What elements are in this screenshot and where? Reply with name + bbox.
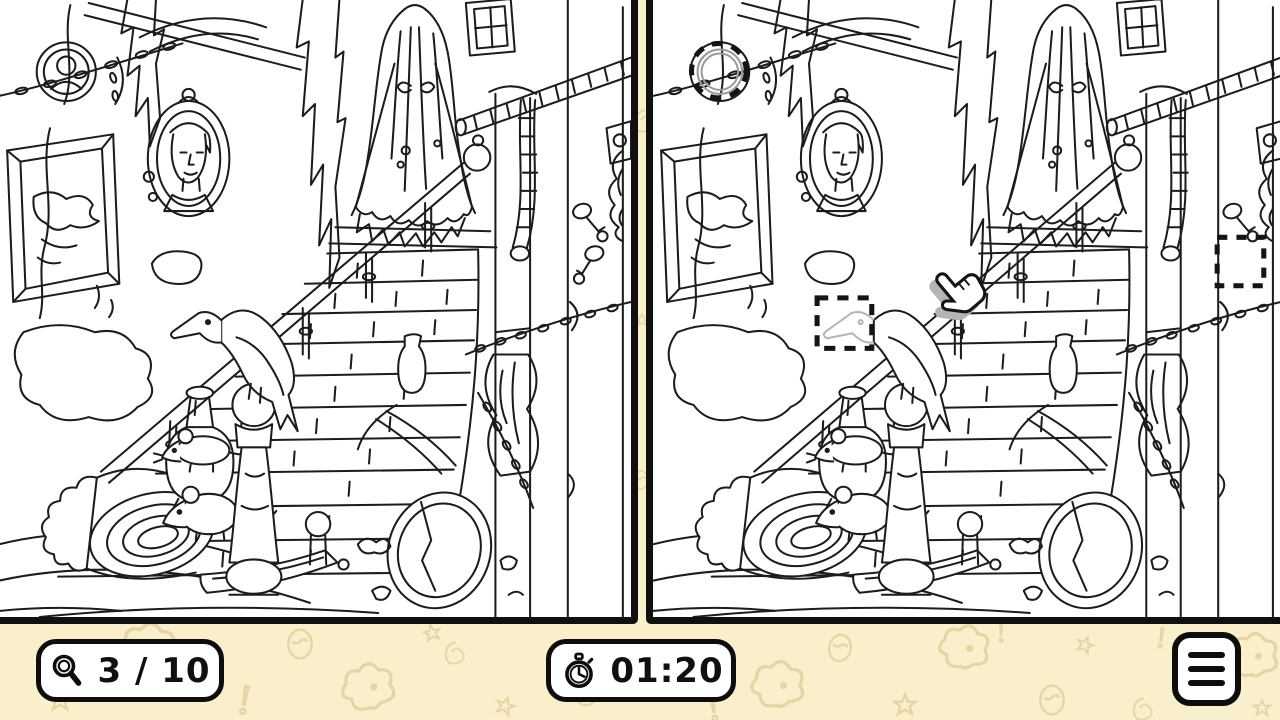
hamburger-menu-icon <box>1188 652 1225 686</box>
timer-label: 01:20 <box>610 651 723 691</box>
timer: 01:20 <box>546 639 736 702</box>
stopwatch-icon <box>558 650 600 692</box>
game-screen: { "app": { "type": "spot-the-difference-… <box>0 0 1280 720</box>
found-counter-label: 3 / 10 <box>97 651 210 691</box>
left-scene-art <box>0 0 631 617</box>
right-scene-art <box>653 0 1280 617</box>
puzzle-panel-left[interactable] <box>0 0 638 624</box>
menu-button[interactable] <box>1172 632 1241 706</box>
puzzle-panel-right[interactable] <box>646 0 1280 624</box>
found-counter: 3 / 10 <box>36 639 224 702</box>
magnifier-icon <box>49 652 87 690</box>
